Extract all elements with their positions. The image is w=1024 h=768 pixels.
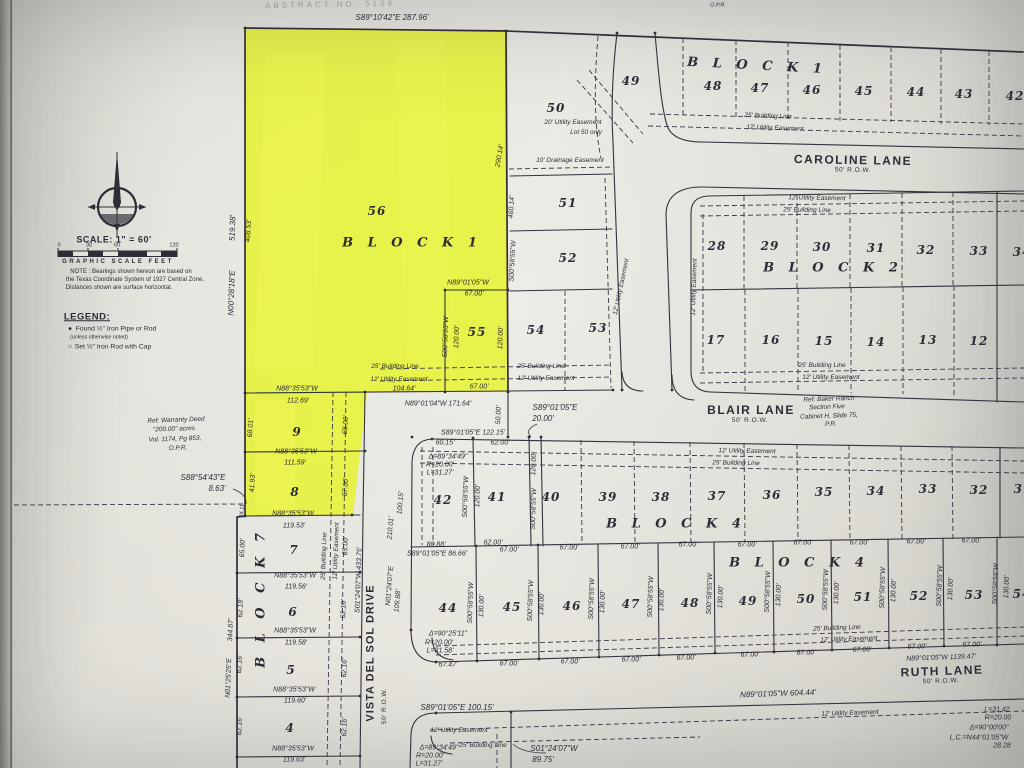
deed-note-line: O.P.R. xyxy=(169,445,188,452)
map-label: 67.00' xyxy=(621,544,640,551)
map-label: 130.00' xyxy=(1003,576,1011,599)
map-label: 12' Utility Easement xyxy=(517,376,574,383)
map-label: 130.00' xyxy=(775,584,783,607)
map-label: 8.63' xyxy=(208,485,225,493)
map-label: 130.00' xyxy=(658,589,666,612)
map-label: 12' Utility Easement xyxy=(802,375,859,382)
survey-note-line: the Texas Coordinate System of 1927 Cent… xyxy=(66,277,204,283)
map-label: 62.00' xyxy=(484,540,503,547)
map-label: S89°01'05"E xyxy=(533,404,578,412)
map-label: S89°01'05"E 86.66' xyxy=(407,551,467,558)
map-label: 60.15' xyxy=(436,440,455,447)
plat-note-line: Section Five xyxy=(809,404,845,412)
map-label: R=20.00' xyxy=(426,462,454,469)
map-label: 54 xyxy=(527,324,546,336)
map-label: 67.00' xyxy=(622,657,641,664)
map-label: 67.00' xyxy=(677,654,696,661)
map-label: 48 xyxy=(681,597,700,609)
map-label: 67.00' xyxy=(738,542,757,549)
map-label: 120.00' xyxy=(497,327,505,350)
map-label: 33 xyxy=(970,245,989,257)
map-label: 25' Building Line xyxy=(459,743,507,750)
map-label: 120.00' xyxy=(453,326,461,349)
map-label: 104.64' xyxy=(393,386,416,393)
map-label: 62.16' xyxy=(236,716,244,735)
map-label: 68.00' xyxy=(342,415,350,434)
map-label: 25' Building Line xyxy=(371,364,419,371)
map-label: 20.00' xyxy=(532,415,554,423)
map-label: S00°58'55"W xyxy=(647,576,655,617)
map-label: B L O C K 4 xyxy=(729,557,869,570)
map-label: 31 xyxy=(1014,483,1024,495)
map-label: L.C.=N44°01'05"W xyxy=(950,735,1009,742)
map-label: 12 xyxy=(970,335,989,347)
map-label: N89°01'04"W 171.64' xyxy=(405,401,471,408)
map-label: 51 xyxy=(854,591,873,603)
map-label: 67.00' xyxy=(853,646,872,653)
map-label: 65.00' xyxy=(239,538,247,557)
map-label: 37 xyxy=(708,490,727,502)
map-label: 32 xyxy=(917,244,936,256)
map-label: 47 xyxy=(751,82,770,94)
map-label: 45 xyxy=(503,601,522,613)
map-label: 47 xyxy=(622,598,641,610)
map-label: 62.00' xyxy=(491,440,510,447)
map-label: 67.00' xyxy=(470,384,489,391)
map-label: 5 xyxy=(286,664,295,676)
map-label: S00°58'55"W xyxy=(764,571,772,612)
map-label: 119.63' xyxy=(283,757,305,764)
map-label: VISTA DEL SOL DRIVE xyxy=(366,584,377,721)
map-label: N01°25'25"E xyxy=(225,658,233,698)
map-label: 67.00' xyxy=(465,291,484,298)
map-label: 55 xyxy=(468,326,487,338)
map-label: 32 xyxy=(970,484,989,496)
survey-note-line: NOTE : Bearings shown hereon are based o… xyxy=(70,269,191,275)
map-label: 519.38' xyxy=(229,215,238,241)
map-label: 52 xyxy=(910,590,929,602)
set-rod-icon: ○ xyxy=(68,345,72,352)
map-label: Δ=90°00'00" xyxy=(970,725,1009,732)
map-label: 50' R.O.W. xyxy=(382,688,389,724)
map-label: 67.00' xyxy=(741,651,760,658)
map-label: 67.47' xyxy=(439,662,458,669)
map-label: B L O C K 1 xyxy=(342,237,482,250)
map-label: 25' Building Line xyxy=(712,460,760,467)
map-label: 62.18' xyxy=(237,598,245,617)
map-label: 50.00' xyxy=(495,405,503,424)
map-label: 30 xyxy=(813,241,832,253)
map-label: 15 xyxy=(815,335,834,347)
scale-tick: 0 xyxy=(57,243,60,249)
map-label: N88°35'53"W xyxy=(276,386,318,393)
map-label: 67.00' xyxy=(963,641,982,648)
map-label: 56 xyxy=(368,205,387,217)
map-label: CAROLINE LANE xyxy=(794,153,912,167)
map-label: 39 xyxy=(599,491,618,503)
map-label: 4 xyxy=(285,722,294,734)
map-label: 67.00' xyxy=(962,538,981,545)
map-label: 67.00' xyxy=(797,649,816,656)
map-label: S00°58'55"W xyxy=(442,316,450,357)
map-label: 50' R.O.W. xyxy=(732,418,768,425)
map-label: 62.16' xyxy=(236,654,244,673)
map-label: S00°58'55"W xyxy=(588,578,596,619)
map-label: 44 xyxy=(439,602,458,614)
map-label: 20' Utility Easement xyxy=(544,120,601,127)
map-label: 52 xyxy=(559,252,578,264)
map-label: S89°01'05"E 100.15' xyxy=(420,704,493,712)
map-label: 54 xyxy=(1013,588,1024,600)
map-label: N88°35'53"W xyxy=(274,628,316,635)
map-label: 460.14' xyxy=(508,195,516,218)
map-label: 12' Utility Easement xyxy=(370,377,427,384)
map-label: Δ=89°34'49" xyxy=(420,745,459,752)
map-label: N88°35'53"W xyxy=(272,746,314,753)
plat-map-scan: ABSTRACT NO. 5108 O.P.R. SCALE: 1" = 60'… xyxy=(0,0,1024,768)
map-label: 50 xyxy=(797,593,816,605)
graphic-scale-bar xyxy=(58,248,177,257)
map-label: 12' Utility Easement xyxy=(718,448,775,455)
map-label: 130.00' xyxy=(538,593,546,616)
map-label: 17 xyxy=(707,334,726,346)
map-label: R=20.00' xyxy=(416,753,444,760)
map-label: 344.87' xyxy=(227,619,235,642)
map-label: 28 xyxy=(708,240,727,252)
map-label: 10' Drainage Easement xyxy=(536,158,604,165)
map-label: 67.00' xyxy=(342,477,350,496)
map-label: N89°01'05"W xyxy=(447,280,489,287)
map-label: 130.00' xyxy=(599,591,607,614)
map-label: 68.01' xyxy=(247,418,255,437)
map-label: S00°58'55"W xyxy=(936,565,944,606)
map-label: 67.00' xyxy=(500,661,519,668)
map-label: 25' Building Line xyxy=(798,363,846,370)
map-label: 62.16' xyxy=(341,658,349,677)
map-label: 130.00' xyxy=(947,578,955,601)
map-label: 50' R.O.W. xyxy=(835,167,871,174)
map-label: S00°58'55"W xyxy=(467,582,475,623)
plat-note-line: P.R. xyxy=(825,422,837,429)
north-arrow-icon xyxy=(88,152,146,238)
map-label: R=20.00' xyxy=(425,640,453,647)
map-label: S00°58'55"W xyxy=(527,580,535,621)
map-label: 49 xyxy=(622,75,641,87)
opr-header: O.P.R. xyxy=(710,3,726,9)
map-label: N00°28'18"E xyxy=(227,270,237,316)
map-label: L=31.42 xyxy=(984,707,1010,714)
map-label: 28.28 xyxy=(993,743,1011,750)
map-label: 16 xyxy=(762,334,781,346)
map-label: 12' Utility Easement xyxy=(430,728,487,735)
map-label: S89°01'05"E 122.15' xyxy=(441,430,505,437)
scale-tick: 30 xyxy=(86,243,92,249)
map-label: 12' Utility Easement xyxy=(788,195,845,202)
map-label: 42 xyxy=(434,494,453,506)
map-label: S00°58'55"W xyxy=(706,573,714,614)
map-label: 31 xyxy=(867,242,886,254)
map-label: S88°54'43"E xyxy=(181,474,226,482)
map-label: 42 xyxy=(1006,90,1024,102)
map-label: 48 xyxy=(704,80,723,92)
map-label: 67.00' xyxy=(908,643,927,650)
map-label: S00°58'55"W xyxy=(879,567,887,608)
map-label: 67.00' xyxy=(850,540,869,547)
map-label: 67.00' xyxy=(560,545,579,552)
map-label: 14 xyxy=(867,336,886,348)
map-label: S00°58'55"W xyxy=(462,476,470,517)
map-label: 130.00' xyxy=(890,580,898,603)
map-label: 13 xyxy=(919,334,938,346)
map-label: R=20.00 xyxy=(985,715,1012,722)
map-label: BLAIR LANE xyxy=(707,404,795,416)
map-label: 44 xyxy=(907,86,926,98)
map-label: 25' Building Line xyxy=(783,207,831,214)
map-label: 112.69' xyxy=(287,398,309,405)
map-label: 8 xyxy=(290,486,299,498)
map-label: Δ=89°34'49" xyxy=(429,454,468,461)
map-label: 29 xyxy=(761,240,780,252)
scale-tick: 120 xyxy=(169,243,178,249)
map-label: 119.53' xyxy=(283,523,305,530)
map-label: 119.58' xyxy=(285,640,307,647)
map-label: 120.00' xyxy=(530,453,538,476)
map-label: 53 xyxy=(965,589,984,601)
map-label: B L O C K 2 xyxy=(763,262,903,275)
scale-tick: 60 xyxy=(114,243,120,249)
map-label: 43 xyxy=(955,88,974,100)
map-label: N xyxy=(113,202,121,211)
highlighted-lots xyxy=(245,29,508,516)
map-label: 67.00' xyxy=(679,542,698,549)
map-label: L=31.27' xyxy=(416,761,443,768)
map-label: 67.00' xyxy=(907,539,926,546)
map-label: B L O C K 7 xyxy=(255,528,268,668)
map-label: 34 xyxy=(867,485,886,497)
map-label: N88°35'53"W xyxy=(275,449,317,456)
map-label: 50 xyxy=(547,102,566,114)
legend-item-label: Set ½" Iron Rod with Cap xyxy=(75,345,151,352)
map-label: 130.00' xyxy=(833,582,841,605)
map-label: 119.56' xyxy=(285,584,307,591)
map-label: 45 xyxy=(855,85,874,97)
map-label: 50' R.O.W. xyxy=(923,678,959,686)
map-label: S00°58'55"W xyxy=(530,488,538,529)
map-label: 89.75' xyxy=(532,756,554,764)
map-label: 41.93' xyxy=(249,473,257,492)
found-rod-icon: ● xyxy=(68,327,72,334)
map-label: N88°35'53"W xyxy=(272,511,314,518)
legend-title: LEGEND: xyxy=(64,312,110,322)
map-label: 24.11 xyxy=(240,504,246,518)
map-label: N88°35'53"W xyxy=(274,573,316,580)
map-label: 67.00' xyxy=(561,659,580,666)
survey-note-line: Distances shown are surface horizontal. xyxy=(66,285,172,291)
map-label: Lot 50 only xyxy=(570,130,602,137)
scan-left-edge-shadow xyxy=(0,0,14,768)
map-label: 38 xyxy=(652,491,671,503)
map-label: S01°24'07"W xyxy=(530,745,577,753)
map-label: 65.00' xyxy=(342,536,350,555)
map-label: 46 xyxy=(803,84,822,96)
scale-caption: GRAPHIC SCALE FEET xyxy=(62,259,174,265)
map-label: 62.16' xyxy=(340,599,348,618)
map-label: 46 xyxy=(563,600,582,612)
legend-item-subnote: (unless otherwise noted) xyxy=(70,335,128,340)
map-label: 130.00' xyxy=(478,595,486,618)
map-label: 40 xyxy=(542,491,561,503)
map-label: N88°35'53"W xyxy=(273,687,315,694)
map-label: 130.00' xyxy=(717,586,725,609)
map-label: 120.00' xyxy=(474,485,482,508)
map-label: L=31.27' xyxy=(427,470,454,477)
map-label: 53 xyxy=(589,322,608,334)
map-label: 6 xyxy=(288,606,297,618)
map-label: 51 xyxy=(559,197,578,209)
map-label: 34 xyxy=(1013,246,1024,258)
map-label: 9 xyxy=(292,426,301,438)
map-label: 80.88' xyxy=(427,542,446,549)
map-label: 67.00' xyxy=(794,540,813,547)
map-label: 35 xyxy=(815,486,834,498)
map-label: 67.00' xyxy=(500,547,519,554)
map-label: 119.60' xyxy=(284,698,306,705)
map-label: S89°10'42"E 287.96' xyxy=(355,14,428,22)
map-label: Δ=90°25'11" xyxy=(429,631,467,638)
map-label: 49 xyxy=(739,595,758,607)
map-label: 7 xyxy=(289,544,298,556)
map-label: S00°58'55"W xyxy=(992,563,1000,604)
legend-item-label: Found ½" Iron Pipe or Rod xyxy=(76,327,157,334)
map-label: 111.59' xyxy=(284,460,306,467)
map-label: 41 xyxy=(488,491,507,503)
map-label: 62.16' xyxy=(341,717,349,736)
map-label: S00°58'55"W xyxy=(822,569,830,610)
map-label: 25' Building Line xyxy=(517,364,565,371)
map-label: RUTH LANE xyxy=(900,664,983,679)
map-label: L=31.58' xyxy=(427,648,454,655)
map-label: B L O C K 4 xyxy=(606,518,746,531)
map-label: 33 xyxy=(919,483,938,495)
map-label: 36 xyxy=(763,489,782,501)
